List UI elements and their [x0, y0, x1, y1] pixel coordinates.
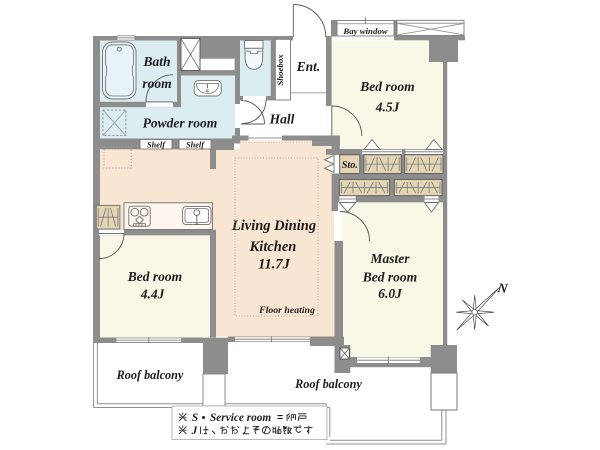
svg-text:Floor heating: Floor heating: [258, 305, 315, 316]
svg-text:Bay window: Bay window: [342, 26, 387, 36]
svg-text:Bath: Bath: [142, 54, 170, 69]
svg-text:=: =: [277, 412, 283, 424]
svg-text:6.0J: 6.0J: [378, 286, 403, 301]
svg-text:Service room: Service room: [210, 412, 271, 424]
svg-text:Sto.: Sto.: [342, 160, 358, 171]
svg-text:Shelf: Shelf: [147, 140, 166, 149]
svg-text:11.7J: 11.7J: [258, 257, 291, 273]
svg-text:Shoebox: Shoebox: [275, 54, 285, 86]
svg-text:4.5J: 4.5J: [375, 100, 401, 115]
svg-text:Bed room: Bed room: [127, 269, 182, 284]
svg-text:Kitchen: Kitchen: [249, 239, 297, 255]
svg-text:Bed room: Bed room: [359, 79, 414, 94]
svg-text:room: room: [142, 76, 171, 91]
svg-text:Master: Master: [369, 251, 410, 266]
svg-text:Bed room: Bed room: [362, 270, 417, 285]
svg-text:Shelf: Shelf: [186, 140, 205, 149]
svg-text:Roof balcony: Roof balcony: [294, 377, 362, 391]
svg-text:Roof balcony: Roof balcony: [116, 368, 184, 382]
svg-text:J: J: [191, 425, 198, 437]
svg-text:Hall: Hall: [269, 112, 295, 127]
svg-text:Ent.: Ent.: [296, 59, 321, 74]
svg-text:4.4J: 4.4J: [140, 287, 166, 302]
svg-text:Powder room: Powder room: [143, 116, 218, 131]
svg-text:S: S: [192, 412, 198, 424]
svg-text:Living Dining: Living Dining: [231, 218, 316, 234]
